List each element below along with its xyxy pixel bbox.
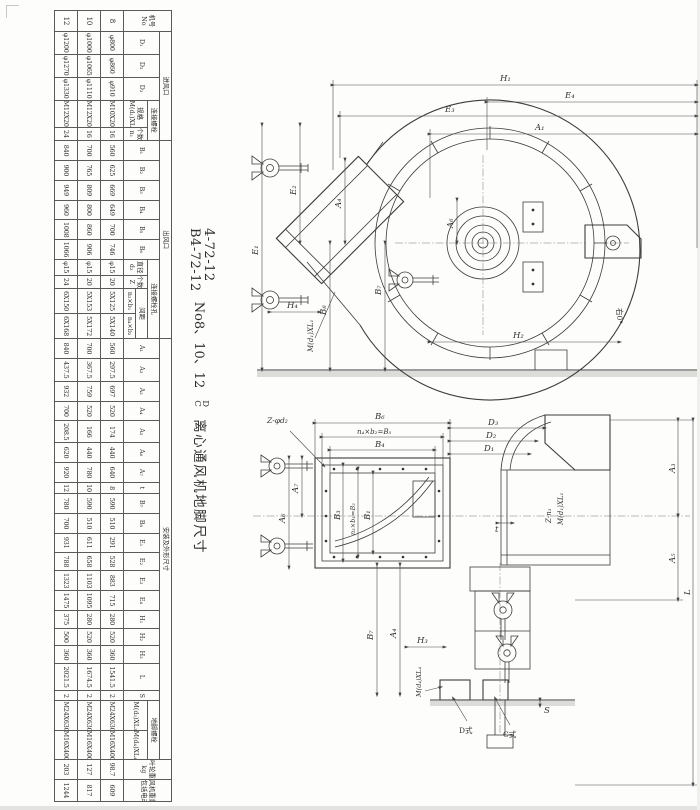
dim-label-h3: H₃ — [416, 636, 428, 646]
side-anchor-bolt-1 — [261, 455, 313, 477]
header-cell: 风机重量(不包括电动机)kg — [124, 779, 172, 801]
table-cell: 5X172 — [78, 314, 101, 339]
table-cell: 1008 — [55, 220, 78, 240]
table-cell: 360 — [101, 646, 124, 664]
table-cell: 12 — [55, 482, 78, 493]
table-cell: 360 — [78, 646, 101, 664]
table-cell: 920 — [55, 463, 78, 483]
header-cell: B₄ — [124, 200, 160, 220]
table-cell: 697 — [101, 381, 124, 401]
dim-label-b5: n₄×b₂=B₅ — [357, 428, 391, 436]
dim-label-a5: A₅ — [668, 553, 678, 564]
header-cell: A₂ — [124, 358, 160, 381]
table-cell: 1095 — [78, 591, 101, 611]
anchor-bolt-1 — [252, 156, 308, 180]
table-cell: 208.5 — [55, 421, 78, 443]
header-cell: t — [124, 482, 160, 493]
dim-label-b7: B₇ — [366, 630, 376, 641]
table-cell: 2 — [55, 691, 78, 701]
header-cell: M(d₄)XL₄ — [124, 730, 148, 759]
table-cell: 127 — [78, 759, 101, 779]
header-cell: 出风口 — [160, 141, 172, 339]
header-cell: A₁ — [124, 339, 160, 359]
header-cell: A₇ — [124, 463, 160, 483]
table-cell: 700 — [78, 141, 101, 161]
type-top: D — [201, 400, 210, 407]
table-cell: 860 — [78, 220, 101, 240]
table-cell: 590 — [78, 494, 101, 514]
header-cell: 安装及外形尺寸 — [160, 339, 172, 760]
dim-label-a6: A₆ — [278, 513, 288, 524]
table-cell: 640 — [101, 463, 124, 483]
header-cell: E₁ — [124, 533, 160, 552]
table-cell: 800 — [78, 200, 101, 220]
table-cell: 700 — [78, 339, 101, 359]
table-cell: 625 — [101, 160, 124, 180]
header-cell: H₂ — [124, 628, 160, 646]
header-cell: A₆ — [124, 443, 160, 463]
dim-label-e1: E₁ — [251, 245, 261, 256]
header-cell: B₃ — [124, 180, 160, 200]
side-dimensions — [289, 419, 697, 785]
title-block: 4-72-12 B4-72-12 No8、10、12 D C 离心通风机地脚尺寸 — [180, 228, 222, 598]
table-cell: φ15 — [101, 259, 124, 275]
table-cell: 590 — [101, 494, 124, 514]
ground-shading — [257, 371, 697, 377]
header-cell: L — [124, 663, 160, 690]
header-cell: B₅ — [124, 220, 160, 240]
dim-label-b7: B₇ — [374, 285, 384, 296]
dim-label-a4: A₄ — [389, 628, 399, 639]
table-cell: 520 — [78, 628, 101, 646]
table-cell: 10 — [78, 482, 101, 493]
size-note: No8、10、12 — [192, 302, 211, 389]
dim-label-bolt4: M(d₄)XL₄ — [415, 667, 423, 698]
table-cell: M24X630 — [101, 701, 124, 730]
table-cell: φ860 — [101, 54, 124, 77]
table-cell: 949 — [55, 180, 78, 200]
header-cell: 机号No — [124, 11, 172, 32]
table-cell: 2021.5 — [55, 663, 78, 690]
table-cell: M16X400 — [78, 730, 101, 759]
table-cell: 203 — [55, 759, 78, 779]
table-cell: 500 — [55, 628, 78, 646]
dim-label-b3: B₃ — [333, 510, 343, 521]
inlet-collector — [501, 415, 610, 565]
table-cell: 6X168 — [55, 314, 78, 339]
table-cell: φ15 — [55, 259, 78, 275]
dim-label-d3: D₃ — [487, 418, 499, 428]
dimension-table-wrap: 机号No进风口出风口安装及外形尺寸叶轮重量kg风机重量(不包括电动机)kgD₁D… — [56, 10, 172, 804]
header-cell: 连接螺栓 — [148, 100, 160, 141]
table-cell: 1674.5 — [78, 663, 101, 690]
header-cell: A₅ — [124, 421, 160, 443]
table-cell: 620 — [55, 443, 78, 463]
bearing-pedestal — [430, 563, 575, 748]
table-cell: M10X20 — [101, 100, 124, 127]
header-cell: D₃ — [124, 77, 160, 100]
table-cell: 700 — [55, 514, 78, 534]
table-cell: 700 — [55, 401, 78, 421]
table-cell: 20 — [78, 275, 101, 289]
table-cell: 1244 — [55, 779, 78, 801]
table-cell: M16X400 — [55, 730, 78, 759]
header-cell: S — [124, 691, 160, 701]
table-cell: 360 — [55, 646, 78, 664]
table-cell: 746 — [101, 240, 124, 260]
dim-label-a3: A₃ — [668, 463, 678, 474]
header-cell: 个数n₁ — [124, 127, 148, 141]
table-cell: 840 — [55, 141, 78, 161]
table-cell: 367.5 — [78, 358, 101, 381]
table-cell: 1541.5 — [101, 663, 124, 690]
dim-label-h2: H₂ — [512, 331, 524, 341]
table-cell: 609 — [101, 779, 124, 801]
table-cell: 20 — [101, 275, 124, 289]
table-cell: 440 — [78, 443, 101, 463]
dim-label-bolt1: M(d₁)XL₁ — [557, 492, 565, 526]
dim-label-a4: A₄ — [334, 198, 344, 209]
header-cell: n₃×b₁ — [124, 289, 136, 314]
table-cell: 765 — [78, 160, 101, 180]
table-cell: 280 — [101, 610, 124, 628]
header-cell: 进风口 — [160, 31, 172, 140]
table-row: 8φ800φ860φ910M10X2016560625669649700746φ… — [101, 11, 124, 802]
table-cell: φ15 — [78, 259, 101, 275]
table-cell: 560 — [101, 339, 124, 359]
header-cell: n₄×b₂ — [124, 314, 136, 339]
table-cell: 16 — [78, 127, 101, 141]
dim-label-dtype: D式 — [459, 725, 473, 735]
header-cell: A₃ — [124, 381, 160, 401]
machine-no-cell: 10 — [78, 11, 101, 32]
table-cell: 5X125 — [101, 289, 124, 314]
table-cell: 1475 — [55, 591, 78, 611]
dim-label-ctype: C式 — [503, 729, 517, 739]
table-cell: 510 — [78, 514, 101, 534]
table-cell: φ1065 — [78, 54, 101, 77]
table-cell: 759 — [78, 381, 101, 401]
header-cell: 地脚螺栓 — [148, 701, 160, 759]
table-cell: 2 — [78, 691, 101, 701]
table-cell: 297.5 — [101, 358, 124, 381]
header-cell: E₄ — [124, 591, 160, 611]
header-cell: B₇ — [124, 494, 160, 514]
dim-label-e4: E₄ — [564, 91, 575, 101]
type-bottom: C — [193, 400, 202, 407]
table-cell: φ1270 — [55, 54, 78, 77]
table-cell: 520 — [101, 401, 124, 421]
table-cell: 528 — [101, 552, 124, 571]
table-cell: 906 — [78, 240, 101, 260]
table-cell: 649 — [101, 200, 124, 220]
table-cell: 960 — [55, 200, 78, 220]
table-cell: 437.5 — [55, 358, 78, 381]
header-cell: H₃ — [124, 646, 160, 664]
header-cell: 间距 — [136, 289, 148, 339]
duct-join-line — [367, 142, 383, 164]
table-cell: 900 — [55, 160, 78, 180]
rotation-angle-label: 右0° — [615, 308, 625, 324]
header-cell: H₁ — [124, 610, 160, 628]
front-view-drawing: H₁ E₄ E₃ A₁ E₁ E₂ A₄ B₈ B₇ A₆ H₄ H₂ M(d₁… — [245, 50, 700, 410]
outlet-duct — [276, 156, 403, 283]
table-cell: 931 — [55, 533, 78, 552]
table-cell: 24 — [55, 275, 78, 289]
side-anchor-bolt-2 — [261, 535, 313, 557]
side-pads — [523, 202, 543, 292]
header-cell: D₁ — [124, 31, 160, 54]
header-cell: 规格M(d₁)XL₁ — [124, 100, 148, 127]
table-cell: 658 — [78, 552, 101, 571]
table-cell: 291 — [101, 533, 124, 552]
table-cell: 5X153 — [78, 289, 101, 314]
dim-label-zd: Z-φd₂ — [266, 416, 288, 425]
table-cell: φ1110 — [78, 77, 101, 100]
table-cell: 166 — [78, 421, 101, 443]
dim-label-d1: D₁ — [483, 444, 494, 454]
table-cell: 2 — [101, 691, 124, 701]
header-cell: 叶轮重量kg — [124, 759, 172, 779]
dim-label-t: t — [495, 525, 499, 535]
table-cell: 700 — [101, 220, 124, 240]
table-cell: 611 — [78, 533, 101, 552]
header-cell: E₃ — [124, 571, 160, 591]
dim-label-d2: D₂ — [485, 431, 497, 441]
table-cell: 16 — [101, 127, 124, 141]
dim-label-bolt1: M(d₁)XL₁ — [307, 319, 315, 353]
dim-label-e2: E₂ — [289, 185, 299, 196]
model-numbers: 4-72-12 B4-72-12 — [187, 228, 214, 292]
dim-label-l: L — [683, 589, 693, 596]
table-cell: φ1000 — [78, 31, 101, 54]
table-row: 10φ1000φ1065φ1110M12X2016700765809800860… — [78, 11, 101, 802]
dim-label-b1: B₁ — [363, 510, 373, 521]
header-cell: 连接螺栓孔 — [148, 259, 160, 338]
table-cell: φ1200 — [55, 31, 78, 54]
table-cell: 24 — [55, 127, 78, 141]
table-cell: 510 — [101, 514, 124, 534]
table-cell: φ910 — [101, 77, 124, 100]
table-cell: 780 — [78, 463, 101, 483]
table-cell: 174 — [101, 421, 124, 443]
table-cell: 817 — [78, 779, 101, 801]
table-cell: 932 — [55, 381, 78, 401]
dim-label-h4: H₄ — [286, 301, 298, 311]
header-cell: B₂ — [124, 160, 160, 180]
type-marks: D C — [193, 400, 210, 407]
table-cell: 780 — [55, 494, 78, 514]
hub — [395, 155, 585, 335]
dim-label-b4: B₄ — [374, 440, 385, 450]
side-view-drawing: B₆ n₄×b₂=B₅ B₄ Z-φd₂ D₃ D₂ D₁ M(d₁)XL₁ Z… — [245, 395, 700, 795]
dimension-table: 机号No进风口出风口安装及外形尺寸叶轮重量kg风机重量(不包括电动机)kgD₁D… — [54, 10, 172, 802]
table-cell: 788 — [55, 552, 78, 571]
table-cell: 98.7 — [101, 759, 124, 779]
catalog-page: 4-72-12 B4-72-12 No8、10、12 D C 离心通风机地脚尺寸… — [0, 0, 700, 810]
header-cell: B₈ — [124, 514, 160, 534]
bottom-foot — [535, 350, 567, 370]
table-cell: M12X20 — [55, 100, 78, 127]
page-title: 离心通风机地脚尺寸 — [191, 419, 211, 554]
dim-label-h1: H₁ — [499, 74, 511, 84]
machine-no-cell: 8 — [101, 11, 124, 32]
table-cell: 5X140 — [101, 314, 124, 339]
table-cell: 440 — [101, 443, 124, 463]
table-cell: 520 — [78, 401, 101, 421]
table-cell: 809 — [78, 180, 101, 200]
table-cell: 280 — [78, 610, 101, 628]
header-cell: D₂ — [124, 54, 160, 77]
table-cell: 1103 — [78, 571, 101, 591]
anchor-bolt-2 — [252, 288, 308, 312]
model-line1: 4-72-12 — [201, 228, 215, 292]
machine-no-cell: 12 — [55, 11, 78, 32]
table-cell: 883 — [101, 571, 124, 591]
table-cell: 1323 — [55, 571, 78, 591]
table-cell: 840 — [55, 339, 78, 359]
header-cell: B₁ — [124, 141, 160, 161]
dim-label-b8: B₈ — [319, 305, 329, 316]
table-cell: M16X400 — [101, 730, 124, 759]
table-row: 12φ1200φ1270φ1330M12X2024840900949960100… — [55, 11, 78, 802]
header-cell: B₆ — [124, 240, 160, 260]
table-cell: 715 — [101, 591, 124, 611]
header-cell: A₄ — [124, 401, 160, 421]
dim-label-zn: Z-n₁ — [545, 508, 553, 524]
table-cell: 669 — [101, 180, 124, 200]
dim-label-b6: B₆ — [374, 412, 385, 422]
dim-label-a6: A₆ — [446, 218, 456, 229]
header-cell: M(d₃)XL₃ — [124, 701, 148, 730]
table-cell: 560 — [101, 141, 124, 161]
model-line2: B4-72-12 — [187, 228, 201, 292]
dim-label-b2: n₃×b₁=B₂ — [349, 503, 357, 535]
table-cell: 8 — [101, 482, 124, 493]
dim-label-e3: E₃ — [444, 105, 455, 115]
table-cell: 1066 — [55, 240, 78, 260]
dim-label-s: S — [544, 706, 550, 716]
table-cell: 375 — [55, 610, 78, 628]
header-cell: 直径d₂ — [124, 259, 148, 275]
table-cell: 520 — [101, 628, 124, 646]
table-cell: M24X630 — [78, 701, 101, 730]
dim-label-a1: A₁ — [534, 123, 545, 133]
table-cell: φ800 — [101, 31, 124, 54]
dim-label-a7: A₇ — [291, 483, 301, 494]
table-cell: 6X150 — [55, 289, 78, 314]
table-cell: M12X20 — [78, 100, 101, 127]
header-cell: E₂ — [124, 552, 160, 571]
header-cell: 个数Z — [124, 275, 148, 289]
table-cell: M24X630 — [55, 701, 78, 730]
table-cell: φ1330 — [55, 77, 78, 100]
